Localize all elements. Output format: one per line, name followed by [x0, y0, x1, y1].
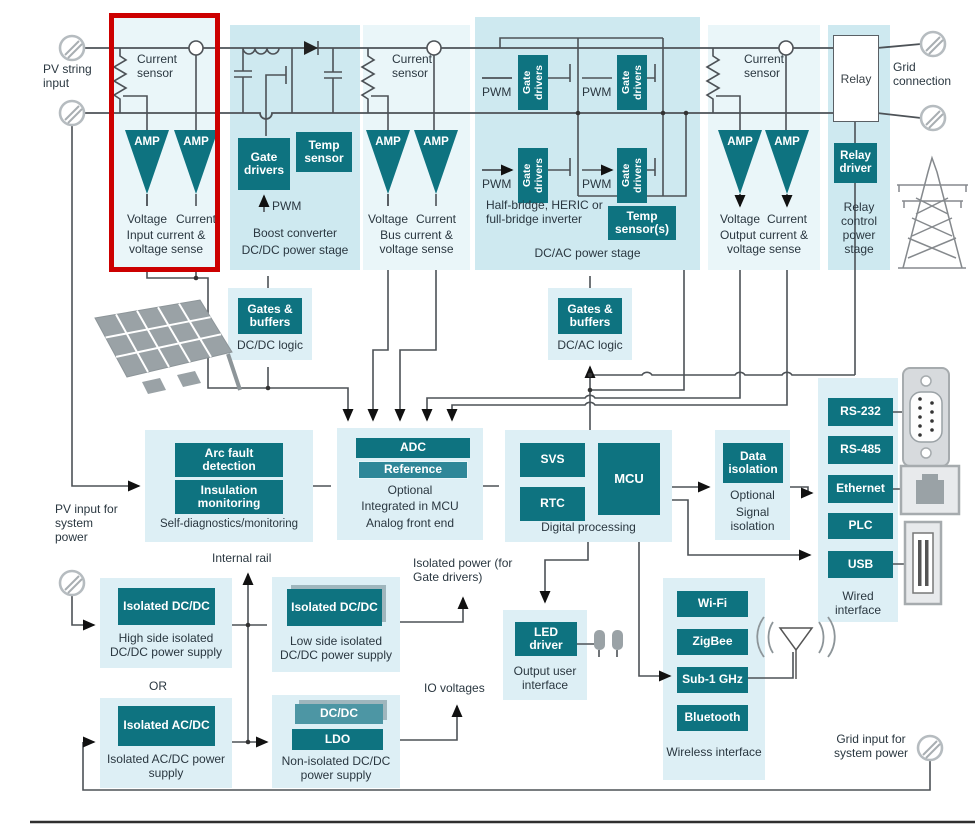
- io-voltages-arrow: [400, 706, 457, 740]
- chip-insulation-monitoring[interactable]: Insulation monitoring: [175, 480, 283, 514]
- mcu-to-wireless: [639, 542, 670, 676]
- chip-label: LDO: [325, 733, 350, 746]
- chip-label: Isolated DC/DC: [291, 601, 378, 614]
- chip-label: Sub-1 GHz: [682, 673, 743, 686]
- label-self-diagnostics: Self-diagnostics/monitoring: [147, 518, 311, 532]
- chip-label: Gate drivers: [240, 151, 288, 178]
- chip-label: Gates & buffers: [560, 303, 620, 330]
- logic-arrows: [268, 276, 590, 430]
- label-dcdc-logic: DC/DC logic: [228, 338, 312, 352]
- chip-ldo[interactable]: LDO: [292, 729, 383, 750]
- label-acdc-supply: Isolated AC/DC power supply: [102, 752, 230, 780]
- chip-label: Gate drivers: [521, 149, 545, 202]
- chip-label: MCU: [614, 472, 644, 487]
- label-wired-interface: Wired interface: [818, 589, 898, 617]
- chip-temp-sensor-boost[interactable]: Temp sensor: [296, 132, 352, 172]
- label-pv-system-power: PV input for system power: [55, 502, 127, 544]
- chip-label: Isolated AC/DC: [123, 719, 209, 732]
- chip-label: ADC: [400, 441, 426, 454]
- label-wireless-interface: Wireless interface: [663, 745, 765, 759]
- label-pwm-4: PWM: [582, 177, 616, 191]
- chip-relay-driver[interactable]: Relay driver: [834, 143, 877, 183]
- label-boost-converter: Boost converter: [230, 226, 360, 240]
- label-non-isolated-supply: Non-isolated DC/DC power supply: [274, 754, 398, 782]
- chip-label: SVS: [540, 453, 564, 466]
- pv-input-supply-wire: [72, 595, 94, 625]
- label-dcac-power-stage: DC/AC power stage: [505, 246, 670, 260]
- chip-usb[interactable]: USB: [828, 551, 893, 578]
- chip-label: PLC: [849, 519, 873, 532]
- solar-inverter-block-diagram: Gate drivers Temp sensor Gate drivers Ga…: [0, 0, 975, 827]
- chip-temp-sensors[interactable]: Temp sensor(s): [608, 206, 676, 240]
- chip-gate-drivers-2[interactable]: Gate drivers: [617, 55, 647, 110]
- shunt-resistor-3: [707, 48, 719, 113]
- boost-cap-input: [234, 48, 252, 113]
- chip-gates-buffers-dcac[interactable]: Gates & buffers: [558, 298, 622, 334]
- boost-diode: [304, 41, 318, 55]
- label-current-sensor-3: Current sensor: [744, 52, 800, 80]
- antenna-icon: [757, 617, 835, 679]
- ethernet-jack-icon: [901, 466, 959, 514]
- label-bus-sense: Bus current & voltage sense: [363, 228, 470, 256]
- chip-label: DC/DC: [320, 707, 358, 720]
- label-relay-control: Relay control power stage: [830, 200, 888, 257]
- led-icons: [594, 630, 623, 650]
- relay-control-wire: [590, 372, 855, 375]
- label-output-user-interface: Output user interface: [503, 664, 587, 692]
- label-io-voltages: IO voltages: [424, 681, 494, 695]
- chip-led-driver[interactable]: LED driver: [515, 622, 577, 656]
- chip-label: AMP: [375, 136, 401, 148]
- chip-zigbee[interactable]: ZigBee: [677, 629, 748, 655]
- label-isolated-power: Isolated power (for Gate drivers): [413, 556, 525, 584]
- chip-label: Insulation monitoring: [177, 484, 281, 511]
- chip-dcdc[interactable]: DC/DC: [295, 704, 383, 724]
- chip-label: RTC: [540, 497, 565, 510]
- boost-mosfet: [266, 48, 292, 136]
- chip-label: Temp sensor(s): [610, 210, 674, 237]
- label-inverter-type: Half-bridge, HERIC or full-bridge invert…: [486, 198, 604, 226]
- chip-arc-fault-detection[interactable]: Arc fault detection: [175, 443, 283, 477]
- chip-label: Ethernet: [836, 482, 885, 495]
- transmission-tower-icon: [897, 158, 968, 268]
- chip-rs232[interactable]: RS-232: [828, 398, 893, 426]
- chip-label: USB: [848, 558, 873, 571]
- chip-label: RS-232: [840, 405, 881, 418]
- chip-gates-buffers-dcdc[interactable]: Gates & buffers: [238, 298, 302, 334]
- chip-label: Relay driver: [836, 150, 875, 176]
- boost-cap-output: [324, 48, 342, 113]
- label-grid-input-power: Grid input for system power: [824, 732, 918, 760]
- label-pwm-boost: PWM: [272, 199, 308, 213]
- label-isolation-optional: Optional: [715, 488, 790, 502]
- chip-bluetooth[interactable]: Bluetooth: [677, 705, 748, 731]
- chip-label: Wi-Fi: [698, 597, 727, 610]
- label-signal-isolation: Signal isolation: [715, 505, 790, 533]
- serial-db9-icon: [903, 368, 949, 466]
- solar-panel-icon: [95, 300, 240, 394]
- supply-feed-arrows: [248, 625, 267, 742]
- chip-label: Temp sensor: [298, 139, 350, 166]
- chip-isolated-dcdc-low[interactable]: Isolated DC/DC: [287, 589, 382, 626]
- chip-svs[interactable]: SVS: [520, 443, 585, 477]
- chip-label: Arc fault detection: [177, 447, 281, 474]
- label-current-2: Current: [408, 212, 464, 226]
- usb-port-icon: [905, 522, 941, 604]
- label-internal-rail: Internal rail: [212, 551, 284, 565]
- chip-ethernet[interactable]: Ethernet: [828, 475, 893, 503]
- chip-data-isolation[interactable]: Data isolation: [723, 443, 783, 483]
- chip-reference[interactable]: Reference: [358, 461, 468, 479]
- label-pwm-2: PWM: [582, 85, 616, 99]
- chip-label: RS-485: [840, 443, 881, 456]
- chip-label: Data isolation: [725, 450, 781, 477]
- chip-mcu[interactable]: MCU: [598, 443, 660, 515]
- chip-label: Gates & buffers: [240, 303, 300, 330]
- label-pwm-1: PWM: [482, 85, 516, 99]
- supply-junction-wires: [232, 625, 248, 742]
- label-current-3: Current: [759, 212, 815, 226]
- chip-isolated-dcdc-high[interactable]: Isolated DC/DC: [118, 588, 215, 625]
- chip-label: AMP: [774, 136, 800, 148]
- chip-label: Gate drivers: [620, 56, 644, 109]
- wireless-to-antenna: [748, 652, 793, 678]
- chip-label: Gate drivers: [620, 149, 644, 202]
- chip-label: Isolated DC/DC: [123, 600, 210, 613]
- shunt-resistor-2: [362, 48, 374, 113]
- chip-label: Reference: [384, 463, 442, 476]
- chip-gate-drivers-4[interactable]: Gate drivers: [617, 148, 647, 203]
- chip-gate-drivers-3[interactable]: Gate drivers: [518, 148, 548, 203]
- label-grid-connection: Grid connection: [893, 60, 965, 88]
- label-current-sensor-2: Current sensor: [392, 52, 448, 80]
- label-output-sense: Output current & voltage sense: [708, 228, 820, 256]
- chip-gate-drivers-boost[interactable]: Gate drivers: [238, 138, 290, 190]
- label-or: OR: [143, 679, 173, 693]
- chip-plc[interactable]: PLC: [828, 513, 893, 539]
- label-pwm-3: PWM: [482, 177, 516, 191]
- mcu-to-led: [545, 542, 588, 602]
- chip-label: Gate drivers: [521, 56, 545, 109]
- boost-inductor: [243, 48, 279, 54]
- chip-gate-drivers-1[interactable]: Gate drivers: [518, 55, 548, 110]
- chip-label: ZigBee: [692, 635, 732, 648]
- label-afe-optional: Optional: [337, 483, 483, 497]
- isolation-to-wired: [790, 487, 812, 493]
- chip-wifi[interactable]: Wi-Fi: [677, 591, 748, 617]
- label-pv-string-input: PV string input: [43, 62, 103, 90]
- chip-isolated-acdc[interactable]: Isolated AC/DC: [118, 706, 215, 746]
- chip-label: Bluetooth: [685, 711, 741, 724]
- chip-adc[interactable]: ADC: [356, 438, 470, 458]
- label-afe-integrated: Integrated in MCU: [337, 499, 483, 513]
- chip-label: Relay: [841, 72, 872, 86]
- relay-box[interactable]: Relay: [833, 35, 879, 122]
- label-dcac-logic: DC/AC logic: [548, 338, 632, 352]
- label-dcdc-power-stage: DC/DC power stage: [230, 243, 360, 257]
- highlight-box-input-sense[interactable]: [109, 13, 220, 272]
- chip-rs485[interactable]: RS-485: [828, 436, 893, 464]
- label-analog-front-end: Analog front end: [337, 516, 483, 530]
- chip-label: AMP: [423, 136, 449, 148]
- chip-label: AMP: [727, 136, 753, 148]
- label-low-side-supply: Low side isolated DC/DC power supply: [274, 634, 398, 662]
- chip-sub1ghz[interactable]: Sub-1 GHz: [677, 667, 748, 693]
- sense2-to-adc-a: [373, 270, 388, 420]
- chip-rtc[interactable]: RTC: [520, 487, 585, 521]
- chip-label: LED driver: [517, 626, 575, 653]
- label-high-side-supply: High side isolated DC/DC power supply: [102, 631, 230, 659]
- label-digital-processing: Digital processing: [505, 520, 672, 534]
- isolated-power-arrow: [400, 598, 463, 622]
- amp-output-arrows: [147, 194, 787, 206]
